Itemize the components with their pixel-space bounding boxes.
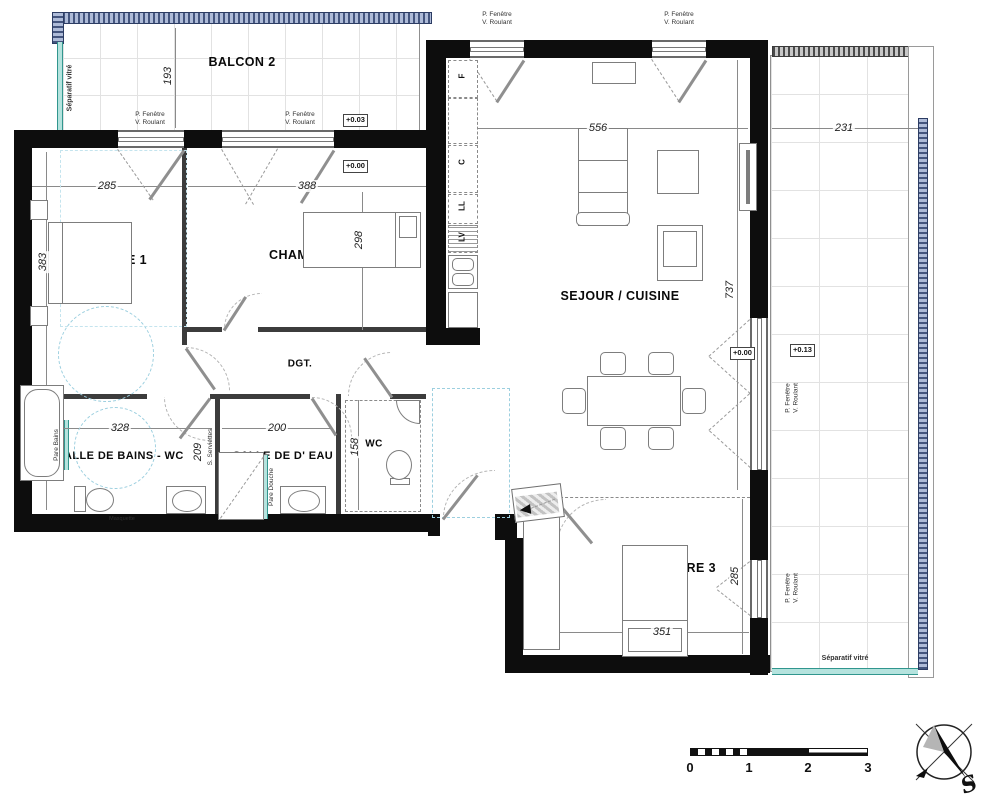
wall <box>505 538 523 673</box>
chambre3-partition-dashed <box>560 497 750 498</box>
toilet-bowl-wc <box>386 450 412 480</box>
dim-383: 383 <box>37 251 49 273</box>
scale-2: 2 <box>804 760 811 775</box>
dim-328: 328 <box>109 422 131 434</box>
balcon1-railing <box>918 118 928 670</box>
compass-icon: S <box>908 712 981 798</box>
entry-door <box>511 483 565 523</box>
window-swing <box>245 149 278 205</box>
kitchen-unit <box>448 98 478 144</box>
window-swing <box>708 393 750 431</box>
window-swing <box>717 589 751 616</box>
balcon1-window-label: P. Fenêtre V. Roulant <box>785 383 802 413</box>
level-sejour: +0.00 <box>730 347 755 360</box>
toilet-tank <box>74 486 86 512</box>
scalebar-seg1 <box>690 748 749 756</box>
balcon2-label: BALCON 2 <box>208 55 275 69</box>
window-swing <box>709 430 751 468</box>
masquette-label: Masquette <box>109 516 135 523</box>
window-label-line2: V. Roulant <box>793 383 800 413</box>
balcon1-glass-separator <box>772 668 918 675</box>
sejour-balcony-window <box>750 318 768 470</box>
nightstand <box>30 200 48 220</box>
balcon2-window1-label: P. Fenêtre V. Roulant <box>135 111 165 128</box>
kitchen-label-f: F <box>458 74 467 79</box>
level-balcon1: +0.13 <box>790 344 815 357</box>
toilet-bowl <box>86 488 114 512</box>
window-label-line1: P. Fenêtre <box>135 111 165 118</box>
balcon2-separator-label: Séparatif vitré <box>65 65 74 112</box>
kitchen-label-ll: LL <box>458 201 467 211</box>
kitchen-label-c: C <box>458 159 467 165</box>
chambre1-window <box>118 130 184 148</box>
partition <box>258 327 426 332</box>
chair <box>648 352 674 375</box>
towel-rail-label: S. Serviettes <box>207 429 215 466</box>
wall <box>184 130 222 148</box>
sink-basin <box>172 490 202 512</box>
sejour-window1-label: P. Fenêtre V. Roulant <box>482 11 512 28</box>
chambre2-window <box>222 130 334 148</box>
level-chambre2: +0.00 <box>343 160 368 173</box>
dim-200: 200 <box>266 422 288 434</box>
sink-basin <box>452 273 474 286</box>
dim-737: 737 <box>724 279 736 301</box>
window-swing <box>651 59 679 101</box>
pillow <box>399 216 417 238</box>
balcon2-window2-label: P. Fenêtre V. Roulant <box>285 111 315 128</box>
sejour-window-1 <box>470 40 524 58</box>
sofa-line <box>578 160 628 161</box>
window-label-line1: P. Fenêtre <box>785 573 792 603</box>
shower-screen-label: Pare Douche <box>268 468 276 506</box>
door-arc <box>186 347 230 391</box>
scale-3: 3 <box>864 760 871 775</box>
window-label-line2: V. Roulant <box>664 20 694 27</box>
dgt-label: DGT. <box>288 359 312 370</box>
balcon2-glass-separator <box>57 42 63 134</box>
bed-line <box>395 212 396 268</box>
entry-arrow-icon <box>519 504 531 515</box>
compass-south-label: S <box>957 770 981 798</box>
dim-line <box>737 60 738 490</box>
dim-line-193 <box>175 28 176 128</box>
sejour-window2-label: P. Fenêtre V. Roulant <box>664 11 694 28</box>
level-balcon2: +0.03 <box>343 114 368 127</box>
tv-line <box>746 150 750 204</box>
wall <box>750 470 768 560</box>
window-label-line1: P. Fenêtre <box>482 11 512 18</box>
nightstand <box>30 306 48 326</box>
dim-line <box>742 499 743 654</box>
window-label-line1: P. Fenêtre <box>664 11 694 18</box>
window-leaf <box>678 60 708 104</box>
window-leaf <box>300 150 335 204</box>
kitchen-fridge <box>448 60 478 98</box>
coffee-table <box>657 150 699 194</box>
dining-table <box>587 376 681 426</box>
scalebar-seg2 <box>749 748 808 756</box>
sofa-arm <box>576 212 630 226</box>
sink-basin <box>452 258 474 271</box>
wall <box>524 40 652 58</box>
dim-388: 388 <box>296 180 318 192</box>
window-swing <box>709 356 751 394</box>
window-label-line1: P. Fenêtre <box>285 111 315 118</box>
kitchen-counter <box>448 292 478 328</box>
clearance-rect <box>432 388 510 518</box>
dim-209: 209 <box>192 441 204 463</box>
chair <box>600 352 626 375</box>
bed-line <box>62 222 63 304</box>
sejour-window-2 <box>652 40 706 58</box>
sejour-label: SEJOUR / CUISINE <box>561 289 680 303</box>
partition <box>390 394 426 399</box>
partition <box>187 327 222 332</box>
wall <box>426 328 480 345</box>
partition <box>210 394 310 399</box>
window-label-line1: P. Fenêtre <box>785 383 792 413</box>
window-label-line2: V. Roulant <box>285 119 315 126</box>
kitchen-cooker <box>448 145 478 193</box>
dim-298: 298 <box>353 229 365 251</box>
dim-231: 231 <box>833 122 855 134</box>
dim-193: 193 <box>162 65 174 87</box>
balcon1-top-rail <box>772 46 910 57</box>
window-leaf <box>496 60 526 104</box>
chambre3-window-label: P. Fenêtre V. Roulant <box>785 573 802 603</box>
dim-556: 556 <box>587 122 609 134</box>
balcon2-railing <box>52 12 432 24</box>
armchair-seat <box>663 231 697 267</box>
chair <box>682 388 706 414</box>
scale-0: 0 <box>686 760 693 775</box>
bath-screen-label: Pare Bains <box>53 429 61 461</box>
wall <box>426 40 446 345</box>
sofa-line <box>578 192 628 193</box>
window-label-line2: V. Roulant <box>482 20 512 27</box>
balcon1-separator-label: Séparatif vitré <box>822 654 869 663</box>
sink-basin <box>288 490 320 512</box>
chair <box>648 427 674 450</box>
chambre3-window <box>750 560 768 618</box>
clearance-circle <box>74 407 156 489</box>
wall <box>505 655 770 673</box>
kitchen-label-lv: LV <box>458 232 467 242</box>
balcon2-railing-corner <box>52 12 64 44</box>
bed-chambre1 <box>48 222 132 304</box>
chair <box>562 388 586 414</box>
scalebar-seg3 <box>808 748 868 756</box>
dim-351: 351 <box>651 626 673 638</box>
window-label-line2: V. Roulant <box>793 573 800 603</box>
dim-285b: 285 <box>729 565 741 587</box>
scale-1: 1 <box>745 760 752 775</box>
console-table <box>592 62 636 84</box>
window-label-line2: V. Roulant <box>135 119 165 126</box>
dim-158: 158 <box>349 436 361 458</box>
floor-plan: Séparatif vitré BALCON 2 193 P. Fenêtre … <box>0 0 981 800</box>
bed-line <box>622 620 688 621</box>
chair <box>600 427 626 450</box>
dim-285: 285 <box>96 180 118 192</box>
